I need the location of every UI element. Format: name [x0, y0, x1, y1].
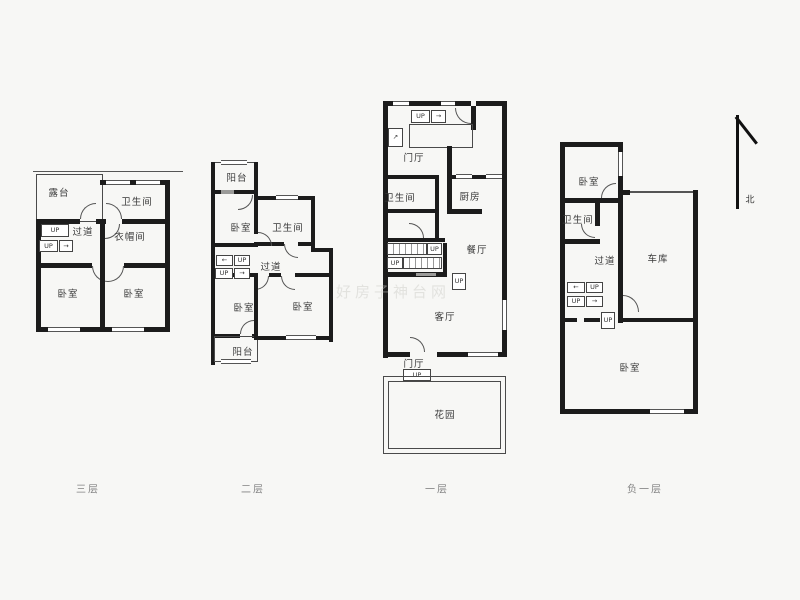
garage-door-line — [630, 191, 693, 193]
stairs-arrow-icon: ← — [567, 282, 585, 293]
wall — [560, 239, 600, 244]
wall — [595, 202, 600, 226]
door-arc — [581, 224, 595, 238]
stairs-box: UP — [586, 282, 603, 293]
room-label-bedroom: 卧室 — [578, 174, 599, 188]
wall — [560, 318, 577, 322]
north-label: 北 — [745, 193, 754, 206]
stairs-box: UP — [601, 312, 615, 329]
floorplan-sheet: UP UP → 露台 卫生间 过道 衣帽间 卧室 卧室 三层 — [0, 0, 800, 600]
floor-caption-b1: 负一层 — [627, 481, 663, 496]
room-label-garage: 车库 — [647, 251, 668, 265]
window — [618, 152, 623, 176]
wall — [693, 190, 698, 414]
wall — [618, 318, 698, 322]
wall — [584, 318, 600, 322]
stairs-box: UP — [567, 296, 585, 307]
north-arrow — [736, 115, 739, 209]
wall — [618, 190, 630, 195]
room-label-bedroom: 卧室 — [619, 360, 640, 374]
room-label-bathroom: 卫生间 — [562, 212, 594, 226]
door-arc — [601, 183, 616, 198]
stairs-arrow-icon: → — [586, 296, 603, 307]
watermark: 好房子神台网 — [336, 281, 486, 302]
room-label-corridor: 过道 — [594, 253, 615, 267]
wall — [560, 198, 622, 203]
wall — [560, 142, 565, 414]
wall — [560, 142, 623, 147]
door-arc — [623, 295, 639, 312]
window — [650, 409, 684, 414]
